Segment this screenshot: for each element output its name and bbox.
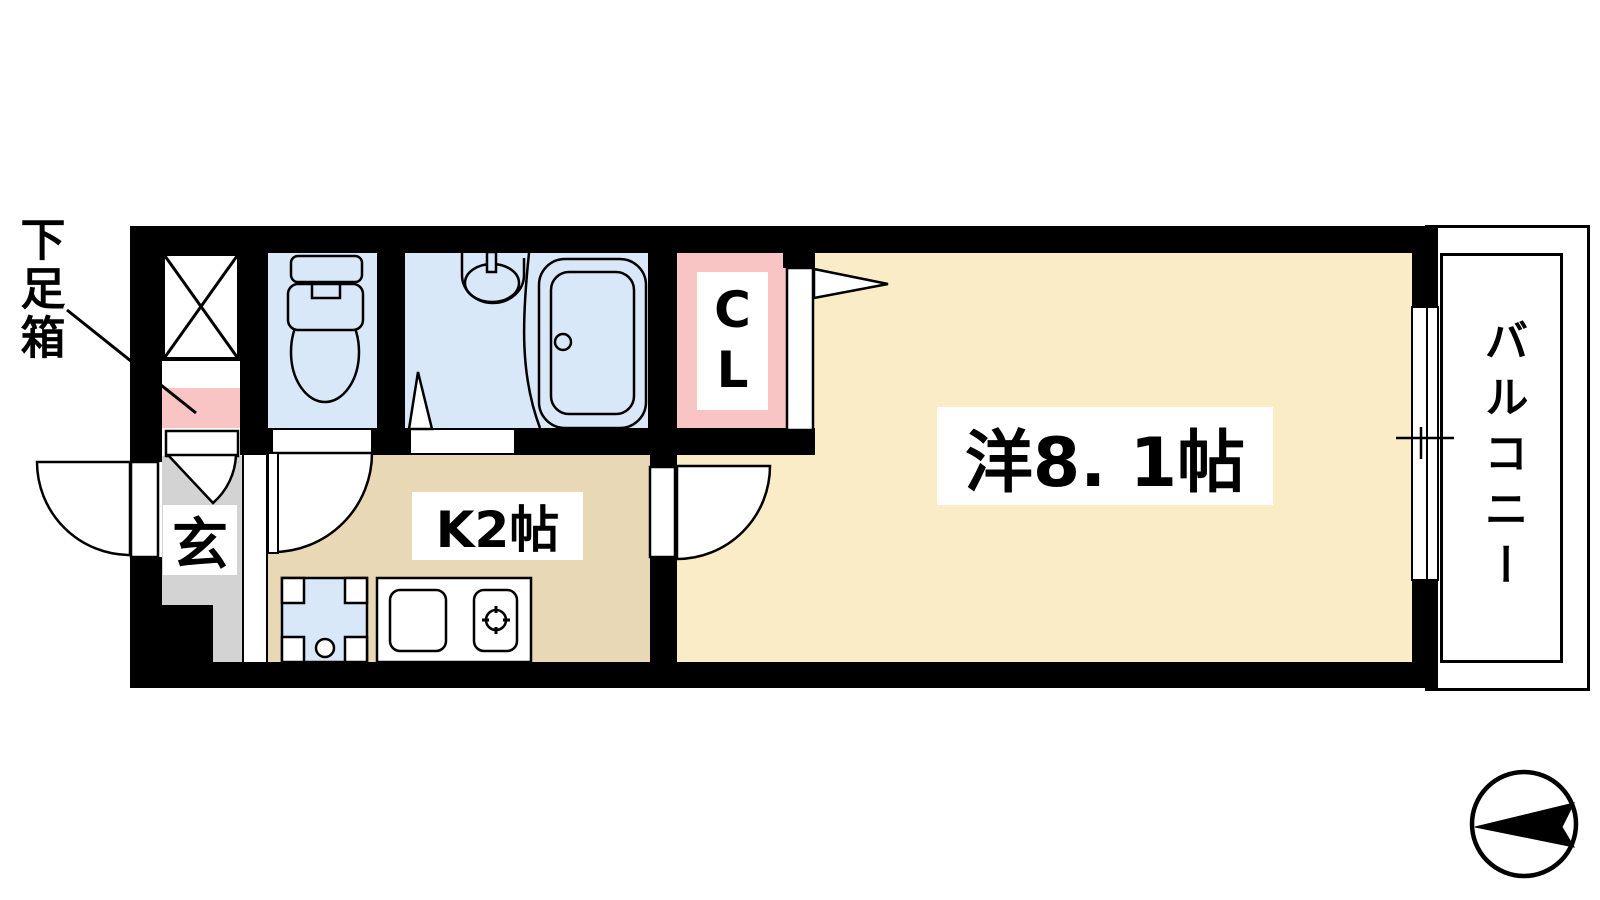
- kitchen-label: K2帖: [412, 492, 583, 560]
- compass-icon: [1472, 772, 1576, 876]
- toilet-door-swing: [268, 429, 372, 553]
- main-room-door-swing: [650, 466, 770, 559]
- bathtub-icon: [539, 259, 646, 428]
- front-door-swing: [37, 462, 158, 557]
- entrance-label: 玄: [163, 505, 237, 575]
- shoe-box-label: 下足箱: [10, 204, 68, 374]
- balcony-label: バルコニー: [1440, 258, 1563, 658]
- kitchen-counter-icon: [377, 578, 531, 662]
- bath-sink-icon: [462, 252, 524, 303]
- pipe-shaft-icon: [163, 254, 239, 359]
- washing-machine-pan-icon: [282, 578, 367, 662]
- floor-plan: 下足箱 玄 K2帖 洋8. 1帖 CL バルコニー: [0, 0, 1600, 900]
- closet-door: [787, 268, 888, 430]
- main-room-label: 洋8. 1帖: [937, 407, 1273, 505]
- shoe-cabinet-door-swing: [166, 431, 238, 503]
- closet-label: CL: [697, 272, 768, 410]
- toilet-icon: [288, 256, 363, 402]
- fixtures-layer: [0, 0, 1600, 900]
- bath-divider-line: [524, 253, 540, 428]
- bath-door: [409, 372, 515, 454]
